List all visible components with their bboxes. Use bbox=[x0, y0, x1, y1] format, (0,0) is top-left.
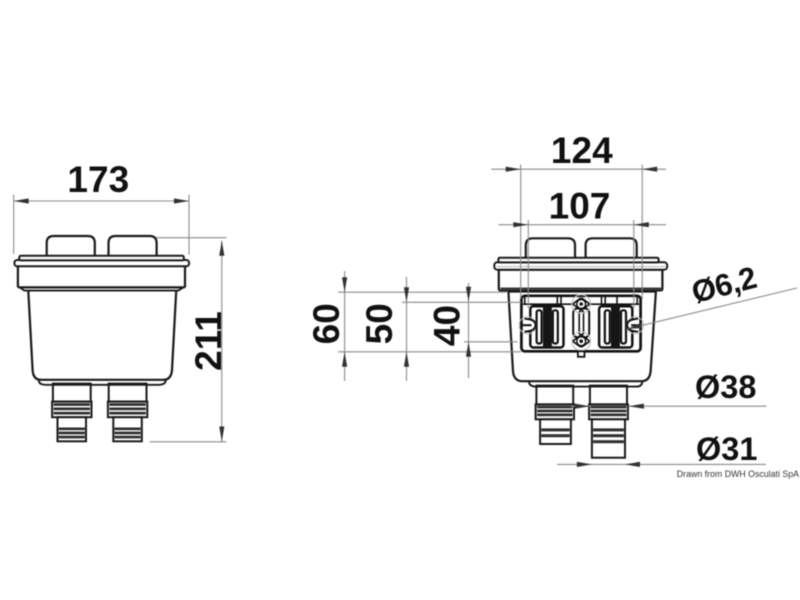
svg-text:Drawn from DWH Osculati SpA: Drawn from DWH Osculati SpA bbox=[677, 469, 799, 479]
svg-text:40: 40 bbox=[427, 305, 468, 346]
svg-text:173: 173 bbox=[67, 159, 129, 200]
svg-text:107: 107 bbox=[549, 185, 611, 226]
svg-text:50: 50 bbox=[359, 303, 400, 344]
svg-text:60: 60 bbox=[306, 303, 347, 344]
svg-text:Ø38: Ø38 bbox=[695, 369, 756, 405]
svg-text:211: 211 bbox=[188, 311, 229, 371]
svg-text:124: 124 bbox=[551, 130, 613, 171]
svg-text:Ø31: Ø31 bbox=[696, 431, 757, 467]
